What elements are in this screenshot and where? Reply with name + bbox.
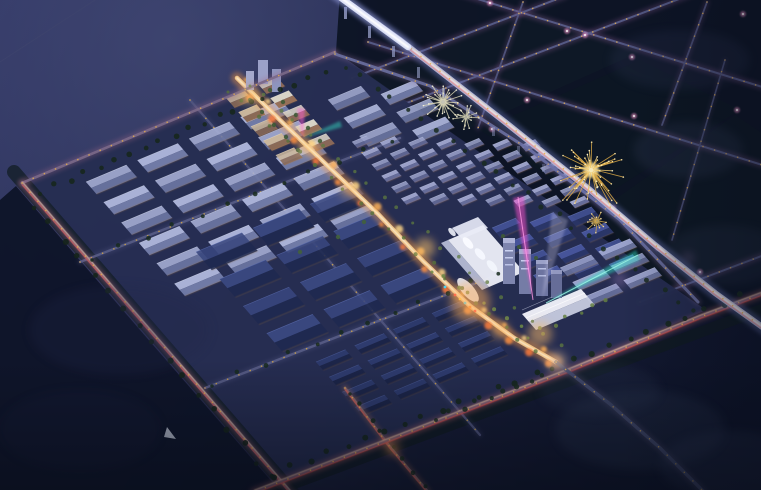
industrial-park-night-scene [0,0,761,490]
tree [230,109,236,115]
shop-light [484,322,492,330]
firework-spark-tip [560,180,562,182]
firework-spark-tip [449,92,451,94]
firework-spark-tip [456,116,458,118]
viaduct-pier [492,127,495,136]
shop-light [395,225,403,233]
tree [358,72,363,77]
firework-spark-tip [575,165,577,167]
shop-light [330,161,337,168]
tree [69,178,75,184]
firework-spark-tip [614,153,616,155]
firework-spark-tip [571,149,573,151]
firework-spark-tip [603,226,605,228]
tree [365,321,370,326]
firework-spark-tip [427,113,429,115]
warm-light-halo [241,87,259,105]
roof-dot [272,123,276,127]
tree [90,258,94,262]
tree [169,222,173,226]
tree [580,311,583,314]
firework-spark-tip [438,109,440,111]
firework-spark-tip [600,218,602,220]
shop-light [421,266,428,273]
tree [487,312,491,316]
tree [218,112,223,117]
tree [587,233,592,238]
firework-spark-tip [448,89,450,91]
tree [313,163,317,167]
firework-spark-tip [596,156,598,158]
tree [485,280,489,284]
firework-spark-tip [611,183,613,185]
tree [286,139,289,142]
firework-spark-trail [591,142,592,166]
tree [463,149,467,153]
tree [457,255,461,259]
roof-dot [501,234,505,238]
firework-spark-tip [457,114,459,116]
tree [280,109,284,113]
tree [305,75,310,80]
tree [390,140,394,144]
firework-spark-tip [574,176,576,178]
firework-spark-tip [612,170,614,172]
firework-spark-tip [428,103,430,105]
firework-spark-tip [562,199,564,201]
firework-spark-tip [587,154,589,156]
tree [80,169,85,174]
firework-spark-tip [439,94,441,96]
tree [155,138,160,143]
tree [185,125,190,130]
firework-spark-tip [463,128,465,130]
firework-spark-tip [456,89,458,91]
roof-dot [284,135,288,139]
tree [505,316,509,320]
warm-light-halo [340,182,356,198]
tree [260,97,264,101]
tree [538,205,543,210]
road-intersection-core [584,34,586,36]
viaduct-pier [392,46,395,57]
firework-spark-tip [448,117,450,119]
viaduct-pier [542,164,545,172]
tree [376,87,381,92]
firework-spark-tip [457,102,459,104]
warm-light-halo [450,282,490,322]
firework-spark-tip [432,85,434,87]
tree [426,230,430,234]
tree [418,116,423,121]
roof-dot [260,110,264,114]
tree [316,343,320,347]
tower-building [503,238,515,284]
firework-spark-tip [601,183,603,185]
viaduct-pier [417,67,420,78]
firework-spark-tip [427,97,429,99]
tree [225,201,230,206]
tree [496,272,500,276]
tree [306,169,310,173]
tree [438,246,442,250]
tree [324,70,329,75]
firework-spark-tip [597,186,599,188]
tree [451,139,455,143]
warm-light-halo [415,238,435,258]
firework-spark-tip [442,85,444,87]
shop-light [268,115,276,123]
shop-light [505,336,513,344]
tree [203,122,207,126]
road-intersection-core [566,30,568,32]
shop-light [525,348,533,356]
roof-dot [298,250,302,254]
firework-spark-tip [595,232,597,234]
tree [603,298,607,302]
tree [364,181,367,184]
right-vignette [620,0,761,490]
tree [569,226,573,230]
firework-spark-tip [597,159,599,161]
viaduct-pier [368,26,371,38]
tree [394,311,398,315]
firework-spark-tip [584,157,586,159]
firework-spark-tip [605,222,607,224]
firework-spark-tip [470,105,472,107]
warm-light-halo [491,321,509,339]
firework-spark-tip [594,225,596,227]
tower-building [538,268,546,270]
roof-dot [281,100,285,104]
firework-spark-tip [589,219,591,221]
tree [441,274,445,278]
firework-spark-tip [573,152,575,154]
tree [589,351,595,357]
aerial-render-canvas [0,0,761,490]
firework-spark-tip [596,195,598,197]
firework-spark-tip [423,105,425,107]
firework-spark-tip [600,212,602,214]
tree [492,307,496,311]
firework-spark-tip [608,161,610,163]
firework-spark-tip [587,198,589,200]
tree [432,261,436,265]
tree [411,221,414,224]
tree [146,236,151,241]
firework-spark-tip [611,200,613,202]
tree [387,227,390,230]
tree [406,108,410,112]
tree [434,128,439,133]
tower-building [505,264,513,266]
firework-spark-tip [452,118,454,120]
firework-spark-tip [587,192,589,194]
tree [590,303,594,307]
road-intersection-core [489,2,491,4]
firework-spark-tip [436,115,438,117]
tree [499,295,503,299]
tree [330,176,333,179]
tree [63,239,69,245]
shop-light [290,137,297,144]
tree [337,160,342,165]
shop-light [265,99,270,104]
firework-spark-tip [596,216,598,218]
tree [534,349,538,353]
roof-dot [336,235,340,239]
tree [402,236,406,240]
firework-spark-tip [470,119,472,121]
roof-dot [318,139,322,143]
shop-light [374,203,382,211]
firework-spark-tip [478,117,480,119]
tower-building [551,270,562,298]
shop-light [541,346,547,352]
tree [394,205,398,209]
tree [513,306,516,309]
firework-spark-tip [468,112,470,114]
roof-dot [294,113,298,117]
roof-dot [444,286,447,289]
tree [111,157,117,163]
firework-spark-tip [584,164,586,166]
tree [563,315,567,319]
firework-spark-tip [584,179,586,181]
firework-spark-tip [574,156,576,158]
firework-spark-tip [591,141,593,143]
firework-spark-tip [454,114,456,116]
tree [99,166,104,171]
roof-dot [268,88,272,92]
firework-spark-tip [434,107,436,109]
tree [309,133,312,136]
tree [383,195,387,199]
tree [45,218,51,224]
tower-building [505,250,513,252]
firework-spark-tip [614,158,616,160]
firework-spark-tip [461,95,463,97]
viaduct-pier [517,146,520,155]
tree [515,338,519,342]
firework-spark-tip [444,111,446,113]
tree [554,324,558,328]
tree [416,300,420,304]
tree [359,201,363,205]
tree [282,181,286,185]
firework-spark-tip [574,202,576,204]
tree [531,320,534,323]
firework-spark-tip [600,176,602,178]
tree [144,146,149,151]
firework-spark-tip [467,105,469,107]
tree [268,124,272,128]
firework-spark-tip [442,113,444,115]
tree [344,66,348,70]
firework-spark-tip [591,222,593,224]
tree [201,214,205,218]
tree [253,191,258,196]
roof-dot [362,220,366,224]
firework-spark-tip [562,155,564,157]
roof-dot [534,256,538,260]
tree [387,94,391,98]
tower-building [505,257,513,259]
firework-spark-tip [574,188,576,190]
tree [116,243,121,248]
tree [174,133,180,139]
firework-spark-tip [576,187,578,189]
firework-spark-tip [462,121,464,123]
tree [446,291,451,296]
tree [291,83,297,89]
firework-spark-tip [587,228,589,230]
warm-light-halo [298,140,314,156]
tree [278,87,283,92]
tree [286,350,290,354]
tower-building [503,238,515,243]
firework-spark-tip [468,127,470,129]
tree [361,147,366,152]
shop-light [379,222,384,227]
firework-spark-tip [570,167,572,169]
tree [226,90,229,93]
tree [468,271,471,274]
shop-light [335,179,341,185]
tree [353,170,356,173]
road-intersection-core [526,99,528,101]
firework-spark-tip [587,221,589,223]
tree [51,181,56,186]
tree [257,115,261,119]
tree [93,273,98,278]
tree [370,211,374,215]
firework-spark-tip [566,199,568,201]
roof-dot [306,126,310,130]
firework-spark-tip [461,110,463,112]
tree [38,192,42,196]
firework-spark-tip [591,217,593,219]
warm-light-halo [528,322,552,346]
shop-light [522,335,527,340]
firework-spark-tip [569,186,571,188]
tree [321,144,325,148]
tree [482,161,487,166]
firework-spark-tip [599,227,601,229]
firework-spark-tip [588,150,590,152]
shop-light [400,244,406,250]
tree [290,118,294,122]
tree [126,152,132,158]
tree [262,93,266,97]
tree [558,211,563,216]
tree [520,325,523,328]
tower-building [551,270,562,274]
firework-spark-tip [609,203,611,205]
firework-spark-tip [434,94,436,96]
firework-spark-tip [596,180,598,182]
tree [430,270,433,273]
roof-dot [517,245,521,249]
tree [339,330,344,335]
tree [615,256,619,260]
firework-spark-tip [591,213,593,215]
tree [601,246,606,251]
tree [511,183,515,187]
tree [526,190,531,195]
tree [493,169,498,174]
firework-spark-tip [597,165,599,167]
tree [32,206,36,210]
firework-spark-tip [425,94,427,96]
tree [560,343,564,347]
firework-spark-tip [616,202,618,204]
tree [606,342,611,347]
firework-spark-tip [476,112,478,114]
tree [74,253,79,258]
